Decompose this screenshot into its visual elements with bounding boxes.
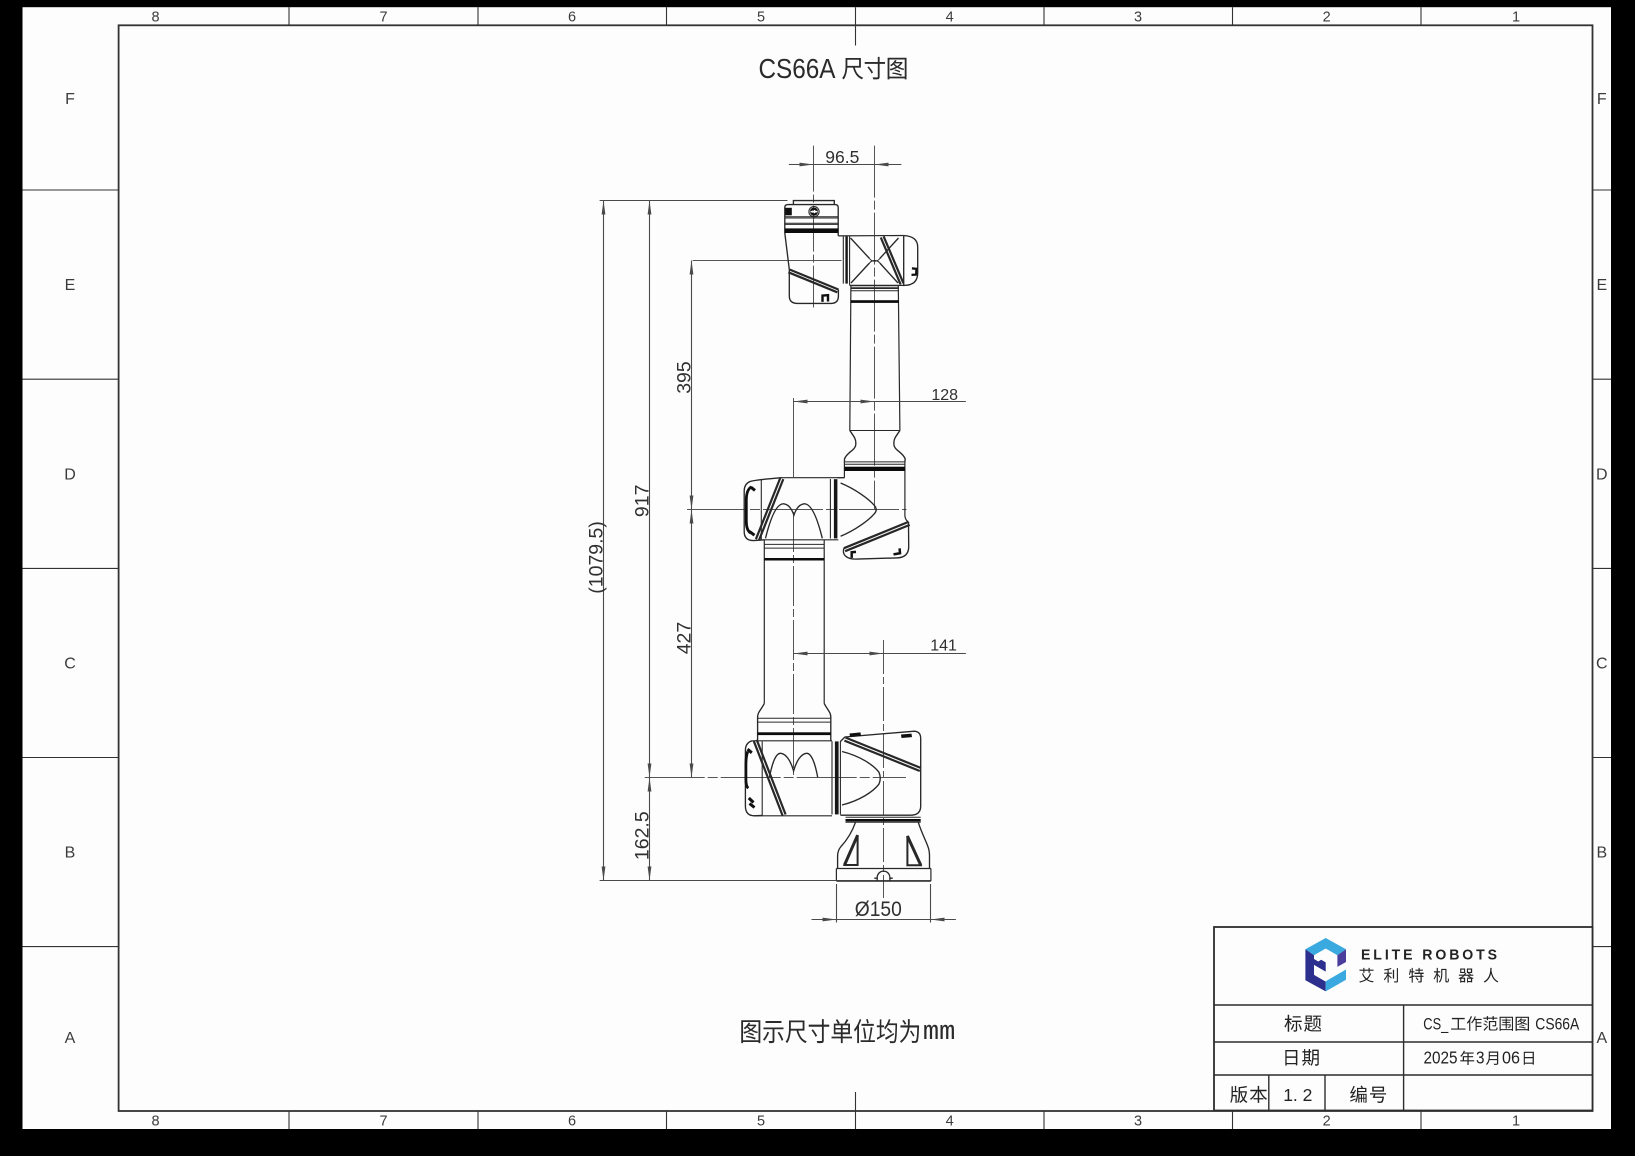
svg-text:917: 917 — [632, 485, 654, 518]
svg-text:3: 3 — [1134, 10, 1142, 26]
svg-text:427: 427 — [674, 622, 696, 655]
svg-text:CS66A: CS66A — [759, 53, 836, 84]
svg-text:128: 128 — [931, 387, 958, 404]
svg-text:1. 2: 1. 2 — [1283, 1085, 1312, 1105]
svg-text:96.5: 96.5 — [825, 147, 859, 167]
svg-text:CS_: CS_ — [1423, 1015, 1448, 1034]
svg-text:B: B — [1596, 845, 1607, 862]
svg-text:5: 5 — [757, 1114, 765, 1130]
svg-text:(1079.5): (1079.5) — [586, 521, 608, 594]
svg-text:395: 395 — [674, 361, 696, 394]
svg-text:162.5: 162.5 — [632, 811, 654, 860]
svg-text:1: 1 — [1512, 10, 1520, 26]
svg-text:7: 7 — [379, 10, 387, 26]
svg-text:2: 2 — [1323, 10, 1331, 26]
svg-text:ELITE ROBOTS: ELITE ROBOTS — [1361, 948, 1500, 964]
svg-text:B: B — [65, 845, 76, 862]
svg-text:C: C — [64, 656, 76, 673]
svg-text:CS66A: CS66A — [1535, 1015, 1580, 1034]
svg-text:4: 4 — [946, 1114, 954, 1130]
svg-text:7: 7 — [379, 1114, 387, 1130]
svg-text:mm: mm — [923, 1018, 955, 1048]
svg-text:4: 4 — [946, 10, 954, 26]
svg-text:A: A — [1596, 1030, 1607, 1047]
svg-text:2: 2 — [1323, 1114, 1331, 1130]
svg-text:6: 6 — [568, 1114, 576, 1130]
svg-text:3: 3 — [1476, 1048, 1485, 1068]
svg-text:F: F — [1597, 91, 1607, 108]
svg-text:8: 8 — [151, 10, 159, 26]
svg-text:E: E — [1596, 277, 1607, 294]
svg-text:E: E — [65, 277, 76, 294]
svg-text:2025: 2025 — [1424, 1048, 1458, 1068]
svg-text:D: D — [1596, 466, 1608, 483]
svg-text:Ø150: Ø150 — [855, 898, 902, 921]
svg-text:F: F — [65, 91, 75, 108]
svg-text:06: 06 — [1502, 1048, 1520, 1068]
svg-text:1: 1 — [1512, 1114, 1520, 1130]
svg-text:141: 141 — [930, 637, 957, 654]
svg-text:6: 6 — [568, 10, 576, 26]
svg-text:C: C — [1596, 656, 1608, 673]
svg-text:3: 3 — [1134, 1114, 1142, 1130]
svg-text:D: D — [64, 466, 76, 483]
svg-text:8: 8 — [151, 1114, 159, 1130]
svg-text:A: A — [65, 1030, 76, 1047]
svg-text:5: 5 — [757, 10, 765, 26]
